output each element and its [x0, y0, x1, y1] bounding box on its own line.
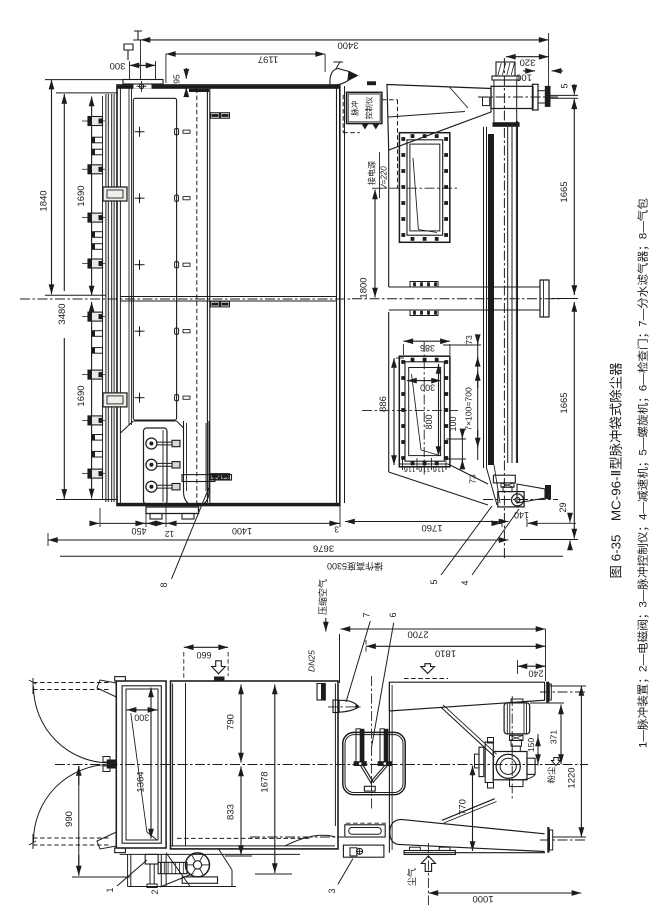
svg-text:1220: 1220 [567, 767, 578, 788]
svg-text:1: 1 [105, 887, 115, 892]
svg-text:116: 116 [433, 465, 445, 474]
svg-text:886: 886 [378, 396, 389, 412]
svg-text:29: 29 [558, 502, 568, 512]
svg-text:1840: 1840 [39, 190, 50, 211]
svg-text:1400: 1400 [232, 526, 252, 536]
svg-text:300: 300 [110, 60, 126, 71]
svg-text:接电源: 接电源 [367, 161, 377, 185]
svg-text:100: 100 [448, 416, 458, 431]
svg-text:800: 800 [424, 414, 434, 429]
svg-text:1690: 1690 [76, 185, 87, 206]
svg-text:1665: 1665 [559, 181, 570, 202]
svg-text:操作高度5300: 操作高度5300 [327, 561, 383, 572]
svg-text:3480: 3480 [57, 303, 68, 324]
svg-text:4: 4 [460, 580, 470, 585]
svg-text:3400: 3400 [337, 39, 358, 50]
svg-text:1678: 1678 [260, 771, 271, 792]
svg-text:320: 320 [520, 56, 536, 67]
svg-text:1760: 1760 [421, 522, 442, 533]
svg-text:控制仪: 控制仪 [364, 96, 374, 119]
svg-text:95: 95 [172, 74, 182, 84]
svg-text:116: 116 [418, 465, 430, 474]
svg-text:DN25: DN25 [307, 650, 317, 672]
svg-text:5: 5 [560, 83, 570, 88]
svg-text:73: 73 [468, 474, 478, 484]
svg-text:116: 116 [404, 465, 416, 474]
svg-text:300: 300 [134, 713, 149, 723]
svg-text:尘气: 尘气 [406, 868, 417, 886]
svg-text:300: 300 [420, 383, 435, 393]
svg-text:6: 6 [388, 612, 398, 617]
svg-text:7: 7 [362, 612, 372, 617]
svg-text:100: 100 [516, 71, 532, 82]
svg-text:450: 450 [131, 526, 146, 536]
svg-text:371: 371 [549, 730, 559, 745]
svg-text:3676: 3676 [313, 542, 334, 553]
svg-text:1690: 1690 [76, 385, 87, 406]
svg-text:1810: 1810 [435, 648, 456, 659]
svg-text:12: 12 [165, 529, 175, 539]
svg-text:140: 140 [514, 510, 529, 520]
svg-text:3: 3 [334, 525, 339, 535]
svg-text:386: 386 [420, 343, 435, 353]
svg-text:1665: 1665 [559, 392, 570, 413]
svg-text:2700: 2700 [407, 629, 428, 640]
svg-text:833: 833 [226, 804, 237, 820]
svg-text:2: 2 [150, 889, 160, 894]
svg-text:脉冲: 脉冲 [350, 100, 360, 116]
svg-text:660: 660 [196, 650, 211, 660]
svg-text:790: 790 [226, 714, 237, 730]
svg-text:5: 5 [429, 579, 439, 584]
svg-text:粉尘: 粉尘 [546, 766, 557, 784]
svg-text:150: 150 [526, 738, 536, 753]
svg-text:图 6-35 MC-96-Ⅱ型脉冲袋式除尘器: 图 6-35 MC-96-Ⅱ型脉冲袋式除尘器 [609, 363, 624, 579]
svg-text:压缩空气: 压缩空气 [317, 579, 328, 615]
svg-text:8: 8 [159, 582, 169, 587]
svg-text:73: 73 [464, 335, 474, 345]
svg-text:1—脉冲装置；2—电磁阀；3—脉冲控制仪；4—减速机；5—螺: 1—脉冲装置；2—电磁阀；3—脉冲控制仪；4—减速机；5—螺旋机；6—检查门；7… [636, 198, 650, 748]
svg-text:1197: 1197 [258, 54, 278, 65]
svg-text:1000: 1000 [472, 893, 493, 904]
svg-text:7×100=700: 7×100=700 [463, 387, 473, 431]
svg-text:V=220: V=220 [379, 166, 388, 190]
svg-text:770: 770 [458, 799, 469, 815]
svg-text:1800: 1800 [358, 277, 369, 298]
svg-text:3: 3 [327, 888, 337, 893]
svg-text:240: 240 [528, 669, 543, 679]
svg-text:990: 990 [64, 811, 75, 827]
